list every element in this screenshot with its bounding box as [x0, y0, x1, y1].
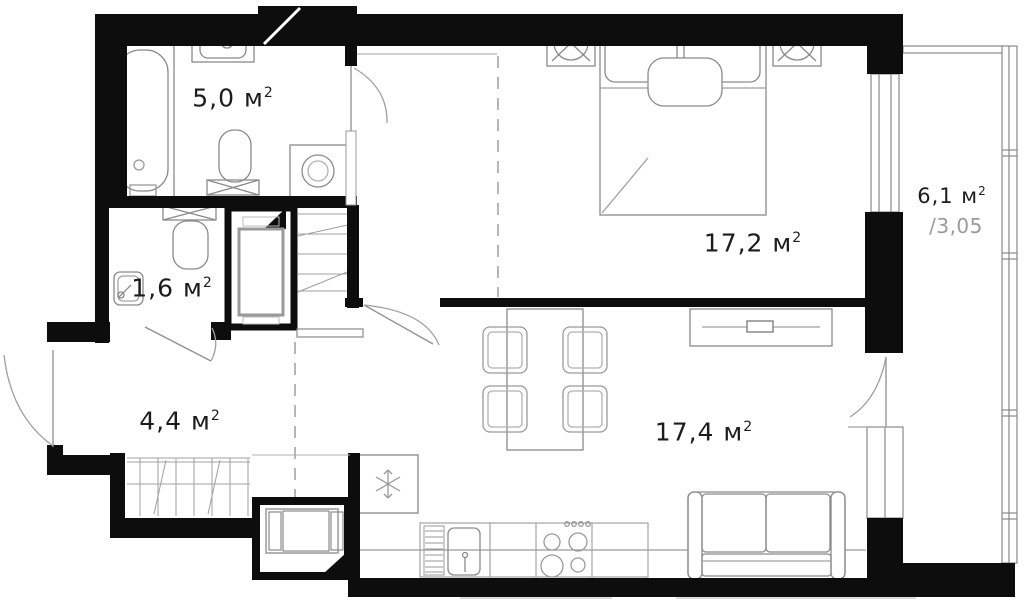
wall-hall-bottom	[110, 518, 256, 538]
wall-hall-top-left	[47, 322, 110, 342]
dining-chairs	[483, 327, 607, 432]
wardrobe-hatch	[127, 458, 250, 516]
wall-left-mid	[95, 196, 109, 343]
wall-balcony-bottom	[898, 563, 1015, 597]
room-label-hallway: 4,4 м2	[139, 407, 221, 436]
shaft-partition	[252, 329, 363, 455]
wall-left-upper	[95, 14, 127, 206]
toilet-wc	[163, 206, 216, 269]
wall-bedroom-living	[440, 298, 867, 307]
closet-shelves	[298, 214, 352, 292]
floor-plan: 5,0 м2 1,6 м2 4,4 м2 17,2 м2 17,4 м2 6,1…	[0, 0, 1029, 600]
washing-machine	[290, 145, 347, 198]
wall-bath-right-upper	[345, 6, 357, 66]
wall-bottom	[348, 578, 905, 597]
fridge-snowflake-icon	[376, 470, 400, 498]
wall-pier-right-top	[867, 14, 903, 74]
entrance-door	[4, 350, 53, 447]
room-label-bathroom: 5,0 м2	[192, 84, 274, 113]
wall-pier-right-mid	[865, 212, 903, 353]
room-label-bedroom: 17,2 м2	[704, 229, 802, 258]
bathroom-door	[346, 66, 387, 205]
kitchen-sink	[448, 528, 480, 575]
chair-3	[483, 386, 527, 432]
bed	[600, 25, 766, 215]
balcony-coefficient: /3,05	[929, 214, 983, 238]
tv-console	[690, 309, 832, 346]
wall-entry-horizontal	[63, 455, 110, 475]
wall-top	[95, 14, 903, 46]
vent-shaft-upper	[228, 208, 294, 327]
room-label-wc: 1,6 м2	[131, 274, 213, 303]
toilet-bathroom	[207, 130, 259, 195]
chair-1	[483, 327, 527, 373]
vent-shaft-lower	[256, 501, 348, 576]
wall-entry-pier	[47, 445, 63, 475]
fridge	[358, 455, 418, 513]
balcony-door	[848, 357, 890, 427]
wall-corridor	[347, 205, 359, 308]
kitchen-door	[364, 305, 439, 345]
wall-bedroom-living-stub	[345, 298, 363, 307]
dining-table	[507, 309, 583, 450]
room-label-balcony: 6,1 м2	[917, 184, 987, 208]
chair-2	[563, 327, 607, 373]
sofa	[688, 492, 845, 579]
room-label-living-kitchen: 17,4 м2	[655, 418, 753, 447]
balcony-glazing	[903, 46, 1017, 563]
wall-top-notch	[258, 6, 354, 18]
wc-door	[145, 327, 216, 361]
bedroom-window	[871, 74, 899, 212]
chair-4	[563, 386, 607, 432]
living-window	[867, 427, 903, 518]
